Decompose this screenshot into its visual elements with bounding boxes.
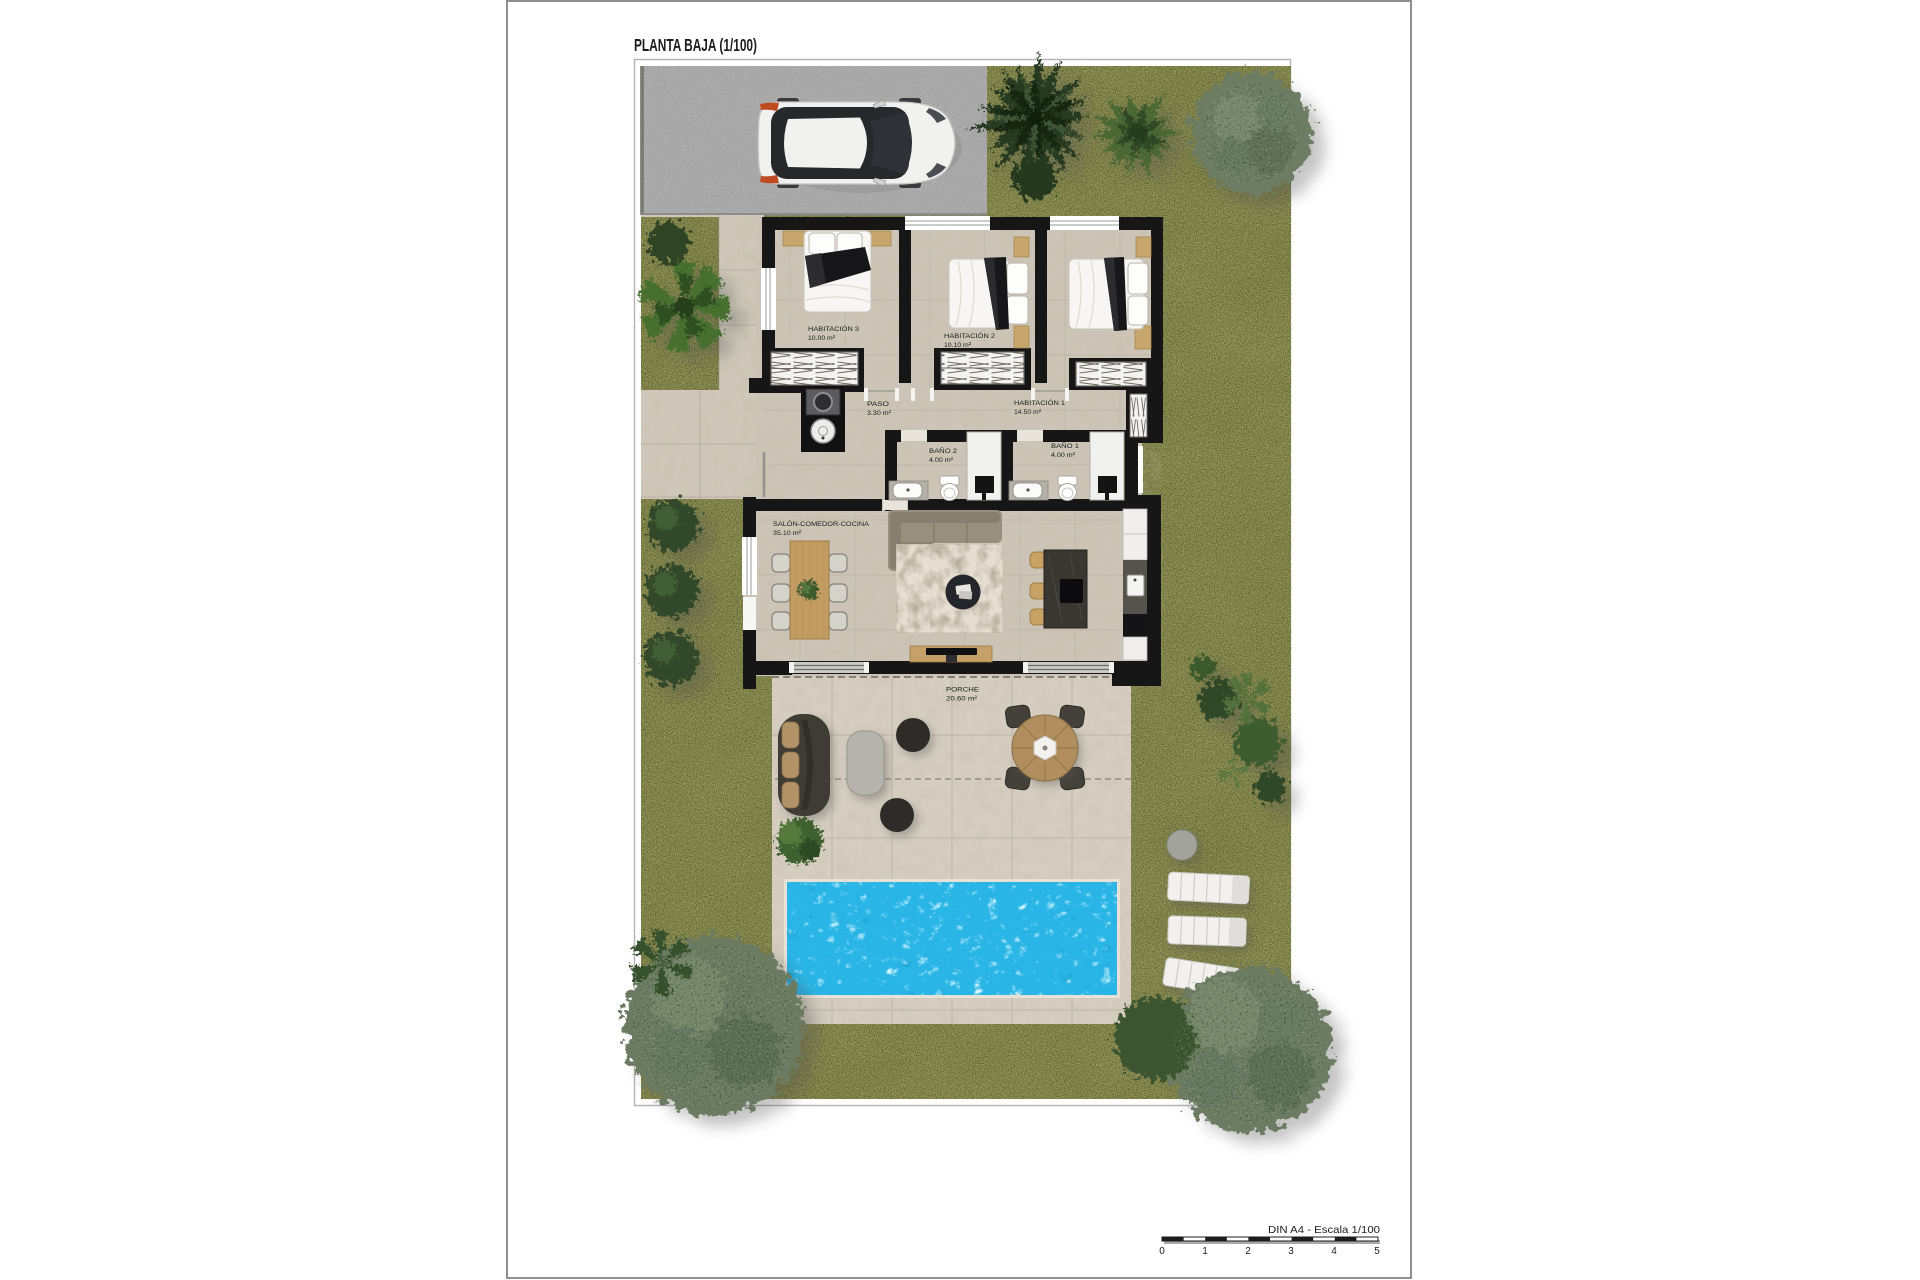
svg-text:1: 1 (1202, 1246, 1208, 1257)
svg-text:PORCHE: PORCHE (946, 687, 980, 694)
svg-text:3: 3 (1288, 1246, 1294, 1257)
svg-text:0: 0 (1159, 1246, 1165, 1257)
svg-text:PLANTA BAJA (1/100): PLANTA BAJA (1/100) (634, 35, 757, 55)
svg-text:HABITACIÓN 3: HABITACIÓN 3 (808, 324, 859, 333)
svg-text:HABITACIÓN 1: HABITACIÓN 1 (1014, 398, 1065, 407)
svg-text:2: 2 (1245, 1246, 1251, 1257)
svg-text:3.30 m²: 3.30 m² (867, 410, 892, 417)
svg-text:35.10 m²: 35.10 m² (773, 530, 802, 537)
svg-text:5: 5 (1374, 1246, 1380, 1257)
svg-text:DIN A4 - Escala 1/100: DIN A4 - Escala 1/100 (1268, 1224, 1380, 1236)
svg-text:10.10 m²: 10.10 m² (944, 342, 972, 349)
svg-text:HABITACIÓN 2: HABITACIÓN 2 (944, 331, 995, 340)
svg-text:SALÓN-COMEDOR-COCINA: SALÓN-COMEDOR-COCINA (773, 519, 869, 528)
svg-text:10.00 m²: 10.00 m² (808, 335, 836, 342)
svg-text:BAÑO 2: BAÑO 2 (929, 446, 957, 455)
svg-text:PASO: PASO (867, 401, 889, 408)
svg-text:4.00 m²: 4.00 m² (929, 457, 954, 464)
svg-text:BAÑO 1: BAÑO 1 (1051, 441, 1079, 450)
svg-text:4: 4 (1331, 1246, 1337, 1257)
svg-text:20.60 m²: 20.60 m² (946, 696, 978, 703)
svg-text:14.50 m²: 14.50 m² (1014, 409, 1042, 416)
svg-text:4.00 m²: 4.00 m² (1051, 452, 1076, 459)
